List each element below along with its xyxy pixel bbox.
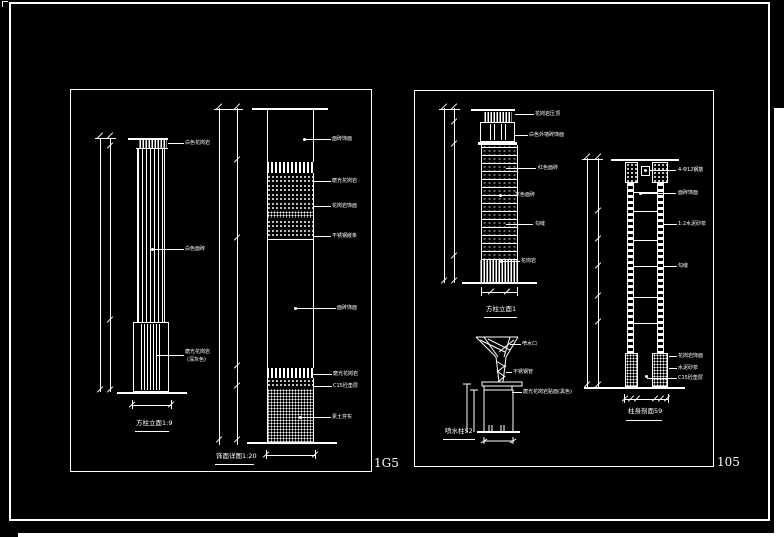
sheet-frame-left [9, 2, 11, 521]
dim-line [582, 159, 603, 160]
drawing-title: 喷水柱52 [445, 428, 473, 436]
section-bottom-block [625, 353, 638, 387]
strip-band-speckle [267, 379, 314, 388]
dim-line [481, 287, 482, 296]
dim-line [132, 405, 171, 406]
dim-line [587, 158, 588, 387]
title-underline [215, 464, 254, 465]
column-base-hatch [479, 260, 519, 282]
leader-label: 花岗岩饰面 [332, 203, 357, 209]
leader-dot [644, 169, 647, 172]
dim-line [439, 109, 460, 110]
ground-line [117, 392, 187, 394]
leader-line [153, 249, 184, 250]
title-underline [443, 439, 475, 440]
column-shaft-brick [481, 145, 518, 260]
strip-band-speckle [267, 229, 314, 237]
section-top-block [652, 162, 668, 183]
leader-line [501, 195, 514, 196]
section-rail-hatch [627, 183, 634, 353]
strip-band-speckle [267, 211, 314, 218]
leader-label: C15砼垫层 [333, 383, 358, 389]
leader-line [664, 266, 677, 267]
leader-label: 不锈钢管 [513, 369, 533, 375]
leader-label: 面砖饰面 [678, 190, 698, 196]
strip-band-speckle [267, 202, 314, 209]
leader-line [506, 168, 536, 169]
strip-top-line [252, 108, 328, 110]
drawing-title: 方柱立面1:9 [136, 420, 172, 428]
dim-line [444, 108, 445, 283]
leader-label: 白色外墙砖饰面 [529, 132, 564, 138]
leader-label: 磨光花岗岩 [333, 371, 358, 377]
section-rung-line [634, 211, 657, 212]
dim-line [214, 109, 243, 110]
leader-line [168, 143, 184, 144]
section-top-block [625, 162, 638, 183]
column-neck-box [480, 122, 515, 142]
page-number: 105 [717, 456, 740, 468]
leader-line [313, 386, 332, 387]
section-rung-line [634, 240, 657, 241]
section-rung-line [634, 266, 657, 267]
leader-label: 白色花岗岩 [185, 140, 210, 146]
column-base-stripes [141, 324, 161, 390]
corner-mark [2, 1, 3, 7]
strip-footing-speckle [267, 389, 314, 442]
dim-line [266, 455, 315, 456]
leader-label: 红色面砖 [538, 165, 558, 171]
dim-line [100, 138, 101, 392]
leader-line [647, 378, 677, 379]
neck-flute-line [494, 124, 495, 140]
leader-label: 勾缝 [535, 221, 545, 227]
leader-line [157, 355, 184, 356]
dim-line [95, 138, 116, 139]
strip-band-speckle [267, 184, 314, 191]
dim-line [517, 287, 518, 296]
page-number: 1G5 [374, 457, 399, 469]
dim-line [219, 108, 220, 445]
leader-line [669, 356, 677, 357]
left-drawing-panel-border [70, 89, 372, 472]
leader-line [502, 261, 520, 262]
leader-line [641, 193, 676, 194]
leader-line [313, 181, 331, 182]
leader-line [301, 417, 331, 418]
leader-line [510, 344, 521, 345]
section-rung-line [634, 323, 657, 324]
leader-label: 喷水口 [522, 341, 537, 347]
column-cap-line [471, 109, 515, 111]
leader-label: 面砖饰面 [332, 136, 352, 142]
leader-label: 花岗岩饰面 [678, 353, 703, 359]
title-underline [135, 431, 169, 432]
drawing-title: 柱身剖面59 [628, 408, 662, 416]
leader-line [506, 372, 512, 373]
strip-band-speckle [267, 220, 314, 227]
leader-line [515, 114, 534, 115]
dim-line [110, 138, 111, 392]
title-underline [484, 317, 517, 318]
leader-label: 1:2水泥砂浆 [678, 221, 706, 227]
strip-band-speckle [267, 193, 314, 200]
leader-label: 勾缝 [678, 263, 688, 269]
leader-label: 白色面砖 [185, 246, 205, 252]
strip-divider-line [267, 239, 314, 240]
column-shaft-fluted [137, 149, 165, 322]
neck-flute-line [501, 124, 502, 140]
leader-line [313, 206, 331, 207]
neck-flute-line [490, 124, 491, 140]
window-right-band [774, 108, 784, 537]
cad-drawing-canvas: 白色花岗岩 白色面砖 磨光花岗岩 (深灰色) 方柱立面1:9 面砖饰面 磨光花岗… [0, 0, 784, 537]
strip-band-hatch [267, 368, 314, 378]
column-capital-hatch [138, 140, 167, 148]
leader-label: 不锈钢嵌条 [332, 233, 357, 239]
leader-label: 面砖饰面 [337, 305, 357, 311]
sheet-frame-bottom [9, 519, 770, 521]
leader-label: 磨光花岗岩 [332, 178, 357, 184]
ground-line [462, 282, 537, 284]
leader-label: 磨光花岗岩 [185, 349, 210, 355]
leader-line [512, 392, 522, 393]
section-rail-hatch [657, 183, 664, 353]
leader-line [669, 368, 677, 369]
leader-label: 水泥砂浆 [678, 365, 698, 371]
dim-line [454, 108, 455, 283]
leader-line [313, 374, 332, 375]
strip-band-hatch [267, 162, 314, 173]
leader-label: 花岗岩压顶 [535, 111, 560, 117]
drawing-title: 方柱立面1 [486, 306, 516, 314]
leader-label: C15砼垫层 [678, 375, 703, 381]
leader-label: 素土夯实 [332, 414, 352, 420]
leader-line [506, 224, 533, 225]
window-bottom-band [18, 533, 784, 537]
drawing-title: 饰面详图1:20 [216, 453, 257, 461]
leader-line [650, 170, 676, 171]
sheet-frame-right [768, 2, 770, 521]
leader-label: 磨光花岗岩贴面(黑色) [523, 389, 572, 395]
strip-band-speckle [267, 175, 314, 182]
strip-baseline [247, 442, 337, 444]
section-top-line [611, 159, 679, 161]
neck-flute-line [505, 124, 506, 140]
leader-label: 花岗岩 [521, 258, 536, 264]
leader-line [514, 135, 528, 136]
leader-line [305, 139, 331, 140]
leader-label: 灰色面砖 [515, 192, 535, 198]
leader-label: 4-Φ12钢筋 [678, 167, 703, 173]
section-rung-line [634, 297, 657, 298]
leader-label: (深灰色) [187, 357, 206, 363]
sheet-frame-top [9, 2, 770, 4]
section-baseline [584, 387, 685, 389]
leader-line [296, 308, 336, 309]
dim-line [598, 158, 599, 387]
title-underline [626, 420, 662, 421]
column-capital-hatch [483, 112, 512, 122]
leader-line [664, 224, 677, 225]
dim-line [481, 292, 517, 293]
section-bottom-block [652, 353, 668, 387]
leader-line [313, 236, 331, 237]
